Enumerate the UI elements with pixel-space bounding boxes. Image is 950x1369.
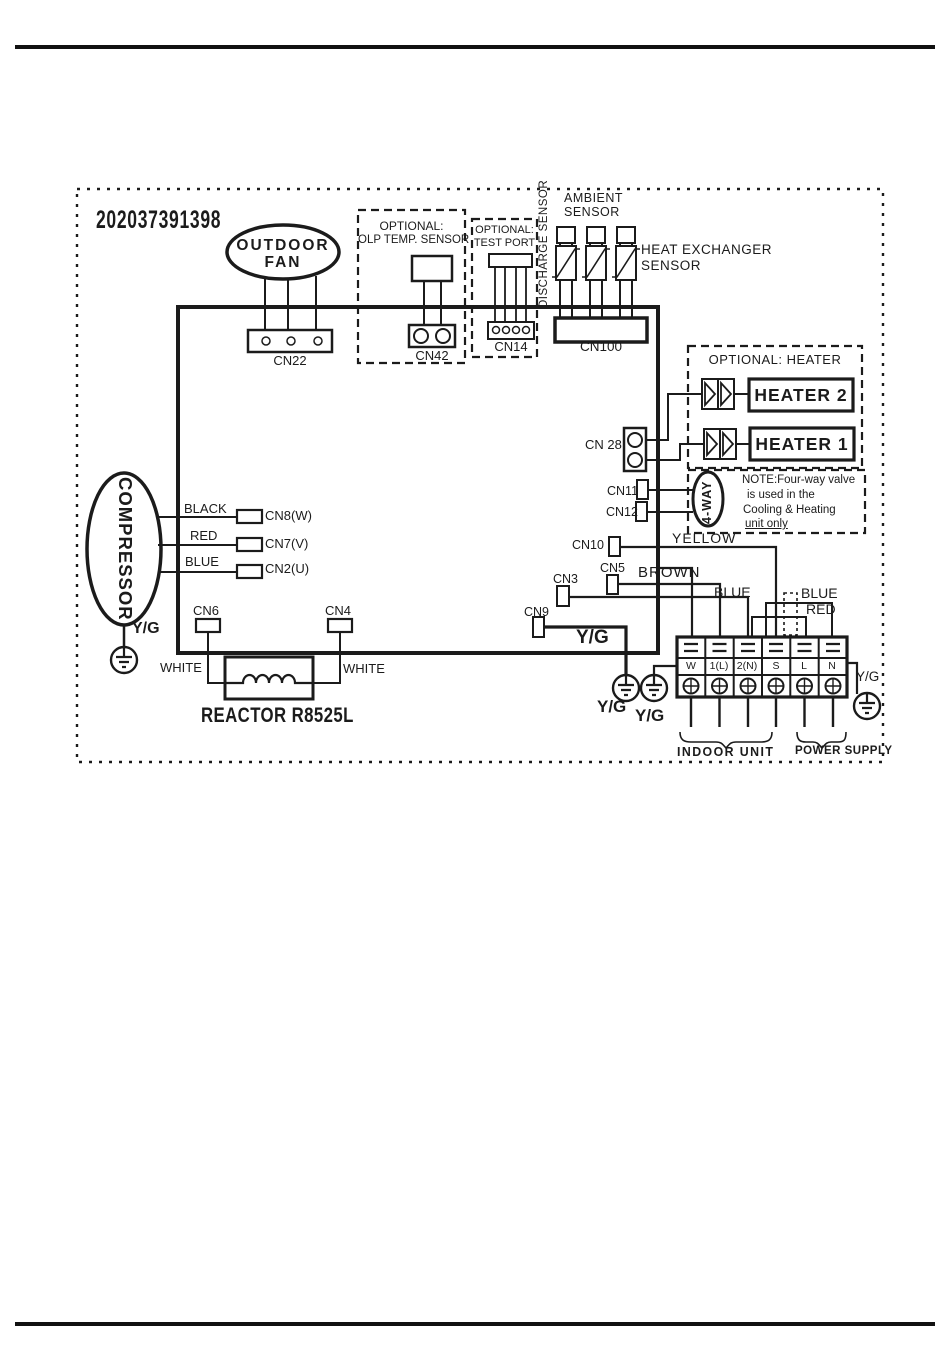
cn9-label: CN9 <box>524 605 549 619</box>
white-wire-label-right: WHITE <box>343 662 385 677</box>
cn28-label: CN 28 <box>585 438 622 453</box>
yg-label-power-side: Y/G <box>856 669 879 685</box>
compressor-label: COMPRESSOR <box>115 477 136 621</box>
four-way-note-line1: NOTE:Four-way valve <box>742 474 855 487</box>
white-wire-label-left: WHITE <box>160 661 202 676</box>
olp-title-line2: OLP TEMP. SENSOR <box>358 234 465 247</box>
cn100-label: CN100 <box>555 339 647 355</box>
cn22-label: CN22 <box>250 354 330 369</box>
blue-wire-label-mid: BLUE <box>714 584 751 600</box>
test-port-title-line2: TEST PORT <box>472 237 537 250</box>
ground-icon <box>854 693 880 719</box>
four-way-note-line4: unit only <box>745 518 788 531</box>
cn7-label: CN7(V) <box>265 537 308 552</box>
power-supply-label: POWER SUPPLY <box>795 745 880 758</box>
cn3-label: CN3 <box>553 572 578 586</box>
blue-wire-label: BLUE <box>185 555 219 570</box>
heat-exchanger-label-line1: HEAT EXCHANGER <box>641 242 772 258</box>
four-way-valve-label: 4-WAY <box>700 481 714 524</box>
heater1-label: HEATER 1 <box>750 428 854 460</box>
heater2-label: HEATER 2 <box>749 379 853 411</box>
terminal-label-s: S <box>762 660 790 672</box>
terminal-label-1l: 1(L) <box>705 660 733 672</box>
ground-icon <box>111 647 137 673</box>
ground-icon <box>641 675 667 701</box>
brown-wire-label: BROWN <box>638 564 701 581</box>
yg-label-bottom-right: Y/G <box>635 706 664 726</box>
cn14-label: CN14 <box>488 340 534 355</box>
cn10-label: CN10 <box>572 538 604 552</box>
cn8-label: CN8(W) <box>265 509 312 524</box>
yellow-wire-label: YELLOW <box>672 530 736 546</box>
yg-label-bottom-left: Y/G <box>597 697 626 717</box>
cn2-label: CN2(U) <box>265 562 309 577</box>
red-wire-label: RED <box>190 529 217 544</box>
four-way-note-line3: Cooling & Heating <box>743 504 836 517</box>
cn11-label: CN11 <box>607 484 638 498</box>
terminal-block-symbol <box>677 637 880 748</box>
cn4-label: CN4 <box>325 604 351 619</box>
yg-label-compressor: Y/G <box>132 620 160 638</box>
sensor-thermistors <box>552 227 647 342</box>
terminal-label-w: W <box>677 660 705 672</box>
terminal-label-n: N <box>818 660 846 672</box>
compressor-symbol <box>87 473 262 673</box>
discharge-sensor-label: DISCHARGE SENSOR <box>538 180 551 308</box>
blue-wire-label-right: BLUE <box>801 585 838 601</box>
ambient-sensor-label-line2: SENSOR <box>564 205 620 219</box>
outdoor-fan-label-line2: FAN <box>223 254 343 272</box>
serial-number: 202037391398 <box>96 206 221 235</box>
four-way-note-line2: is used in the <box>747 489 815 502</box>
terminal-label-l: L <box>790 660 818 672</box>
cn6-label: CN6 <box>193 604 219 619</box>
reactor-symbol <box>196 619 352 699</box>
cn42-label: CN42 <box>409 349 455 364</box>
terminal-label-2n: 2(N) <box>733 660 761 672</box>
outdoor-fan-label-line1: OUTDOOR <box>223 237 343 255</box>
schematic-page: 202037391398 OUTDOOR FAN CN22 OPTIONAL: … <box>0 0 950 1369</box>
yg-label-cn9-wire: Y/G <box>576 627 609 649</box>
ambient-sensor-label-line1: AMBIENT <box>564 191 623 205</box>
indoor-unit-label: INDOOR UNIT <box>677 745 768 760</box>
heat-exchanger-label-line2: SENSOR <box>641 258 701 274</box>
red-wire-label-right: RED <box>806 601 836 617</box>
cn5-label: CN5 <box>600 561 625 575</box>
cn12-label: CN12 <box>606 505 638 519</box>
heater-box-title: OPTIONAL: HEATER <box>690 353 860 368</box>
black-wire-label: BLACK <box>184 502 227 517</box>
olp-title-line1: OPTIONAL: <box>358 220 465 234</box>
bottom-grounds <box>613 666 677 701</box>
test-port-title-line1: OPTIONAL: <box>472 224 537 237</box>
reactor-label: REACTOR R8525L <box>201 704 354 728</box>
